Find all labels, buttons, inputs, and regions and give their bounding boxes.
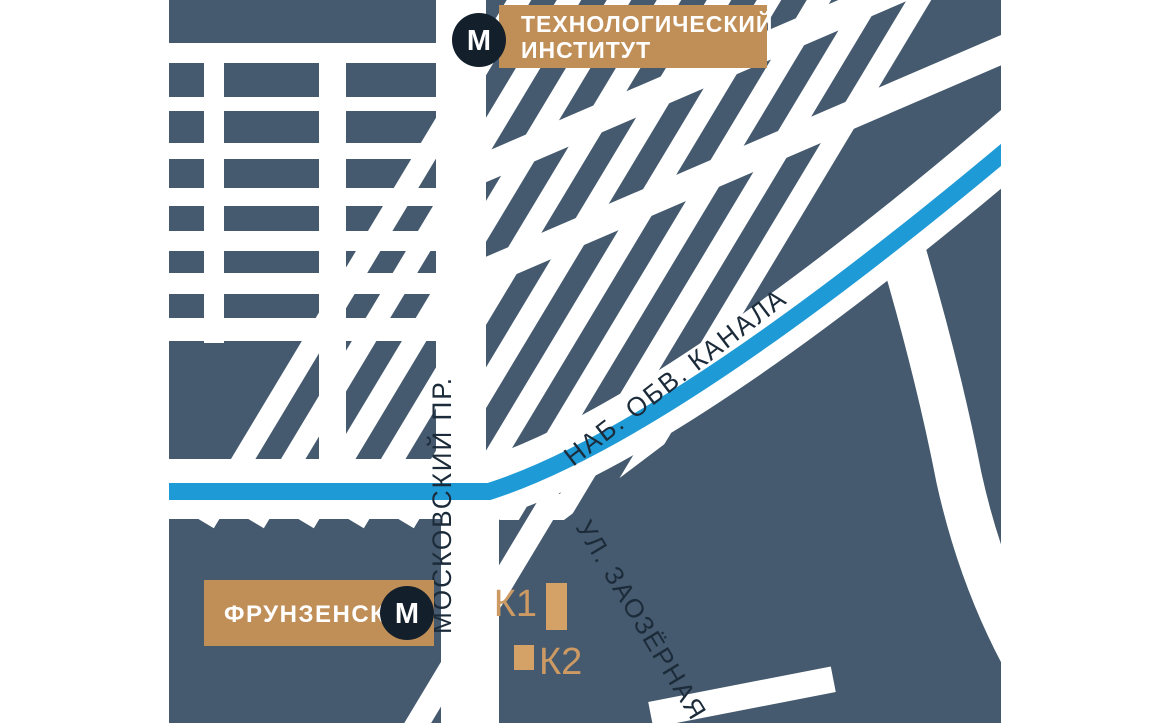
building-k1-label: К1 xyxy=(494,583,537,625)
building-k2-label: К2 xyxy=(539,641,582,683)
station-name-line1: ТЕХНОЛОГИЧЕСКИЙ xyxy=(521,10,773,37)
metro-icon-letter: М xyxy=(467,25,491,57)
map-page: МОСКОВСКИЙ ПР. НАБ. ОБВ. КАНАЛА УЛ. ЗАОЗ… xyxy=(0,0,1170,723)
station-frunzenskaya: ФРУНЗЕНСКАЯ М xyxy=(204,580,434,646)
building-k2 xyxy=(514,645,534,670)
station-technologichesky: ТЕХНОЛОГИЧЕСКИЙ ИНСТИТУТ М xyxy=(452,5,773,68)
map-canvas: МОСКОВСКИЙ ПР. НАБ. ОБВ. КАНАЛА УЛ. ЗАОЗ… xyxy=(169,0,1001,723)
station-name-line2: ИНСТИТУТ xyxy=(521,37,651,63)
building-k1 xyxy=(546,583,567,630)
metro-icon-letter: М xyxy=(395,598,419,630)
